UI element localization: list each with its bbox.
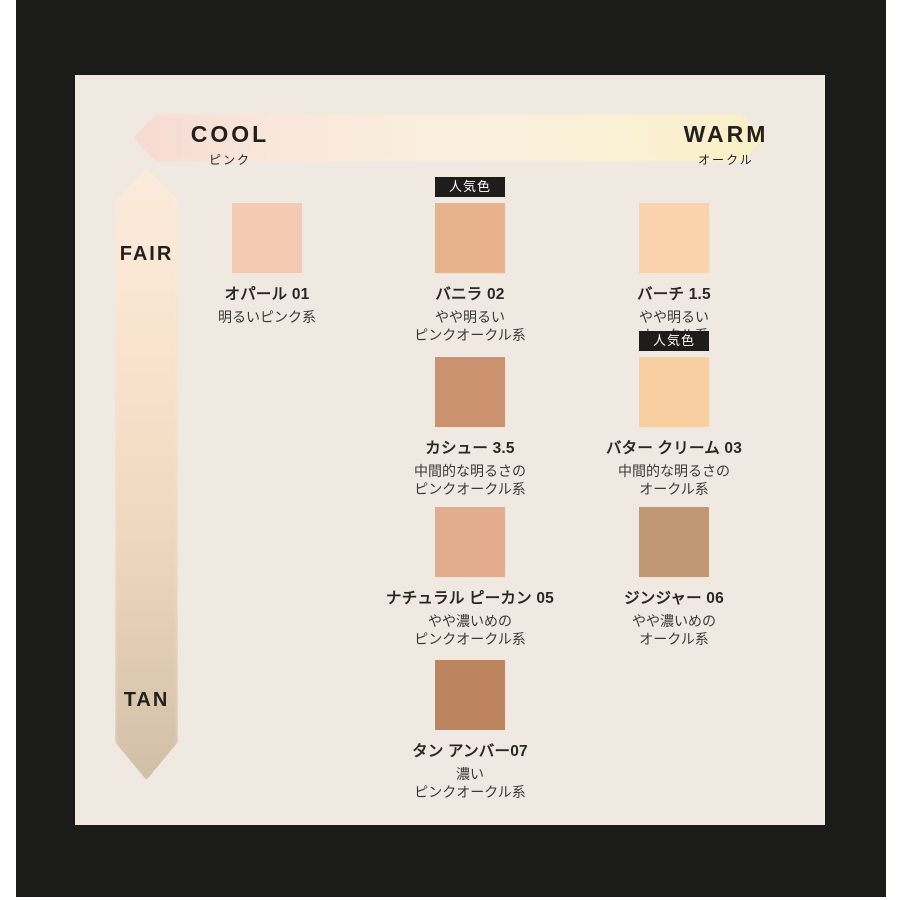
shade-swatch: [435, 660, 505, 730]
shade-cell: 人気色バター クリーム 03中間的な明るさのオークル系: [564, 357, 784, 498]
shade-description-line: やや濃いめの: [564, 612, 784, 630]
cool-label: COOL: [160, 121, 300, 148]
shade-description-line: 中間的な明るさの: [564, 462, 784, 480]
shade-description: 濃いピンクオークル系: [360, 765, 580, 801]
shade-name: バニラ 02: [360, 282, 580, 304]
shade-swatch: [639, 203, 709, 273]
shade-description-line: やや明るい: [360, 308, 580, 326]
shade-cell: 人気色バニラ 02やや明るいピンクオークル系: [360, 203, 580, 344]
warm-sublabel: オークル: [656, 151, 796, 168]
shade-name: ジンジャー 06: [564, 586, 784, 608]
tan-label: TAN: [115, 689, 178, 712]
shade-description-line: ピンクオークル系: [360, 480, 580, 498]
cool-axis-label: COOL ピンク: [160, 121, 300, 168]
warm-axis-label: WARM オークル: [656, 121, 796, 168]
shade-cell: オパール 01明るいピンク系: [157, 203, 377, 326]
shade-description-line: 濃い: [360, 765, 580, 783]
shade-description-line: ピンクオークル系: [360, 630, 580, 648]
shade-name: バーチ 1.5: [564, 282, 784, 304]
shade-description-line: オークル系: [564, 630, 784, 648]
shade-chart-panel: COOL ピンク WARM オークル FAIR TAN オパール 01明るいピン…: [75, 75, 825, 825]
shade-description-line: やや明るい: [564, 308, 784, 326]
shade-cell: バーチ 1.5やや明るいオークル系: [564, 203, 784, 344]
shade-description-line: オークル系: [564, 480, 784, 498]
shade-swatch: [639, 357, 709, 427]
shade-chart-image: COOL ピンク WARM オークル FAIR TAN オパール 01明るいピン…: [0, 0, 900, 900]
shade-name: カシュー 3.5: [360, 436, 580, 458]
shade-description-line: やや濃いめの: [360, 612, 580, 630]
shade-cell: カシュー 3.5中間的な明るさのピンクオークル系: [360, 357, 580, 498]
shade-name: バター クリーム 03: [564, 436, 784, 458]
shade-swatch: [435, 203, 505, 273]
shade-description: 明るいピンク系: [157, 308, 377, 326]
shade-description-line: 明るいピンク系: [157, 308, 377, 326]
shade-name: ナチュラル ピーカン 05: [360, 586, 580, 608]
shade-description-line: ピンクオークル系: [360, 326, 580, 344]
shade-cell: タン アンバー07濃いピンクオークル系: [360, 660, 580, 801]
shade-swatch: [435, 507, 505, 577]
shade-swatch: [639, 507, 709, 577]
shade-swatch: [232, 203, 302, 273]
shade-name: タン アンバー07: [360, 739, 580, 761]
shade-cell: ジンジャー 06やや濃いめのオークル系: [564, 507, 784, 648]
shade-cell: ナチュラル ピーカン 05やや濃いめのピンクオークル系: [360, 507, 580, 648]
warm-label: WARM: [656, 121, 796, 148]
popular-badge: 人気色: [435, 177, 505, 197]
shade-name: オパール 01: [157, 282, 377, 304]
cool-sublabel: ピンク: [160, 151, 300, 168]
shade-description: やや濃いめのオークル系: [564, 612, 784, 648]
shade-description-line: 中間的な明るさの: [360, 462, 580, 480]
shade-description: 中間的な明るさのピンクオークル系: [360, 462, 580, 498]
shade-swatch: [435, 357, 505, 427]
shade-description-line: ピンクオークル系: [360, 783, 580, 801]
shade-description: 中間的な明るさのオークル系: [564, 462, 784, 498]
shade-description: やや濃いめのピンクオークル系: [360, 612, 580, 648]
popular-badge: 人気色: [639, 331, 709, 351]
shade-description: やや明るいピンクオークル系: [360, 308, 580, 344]
